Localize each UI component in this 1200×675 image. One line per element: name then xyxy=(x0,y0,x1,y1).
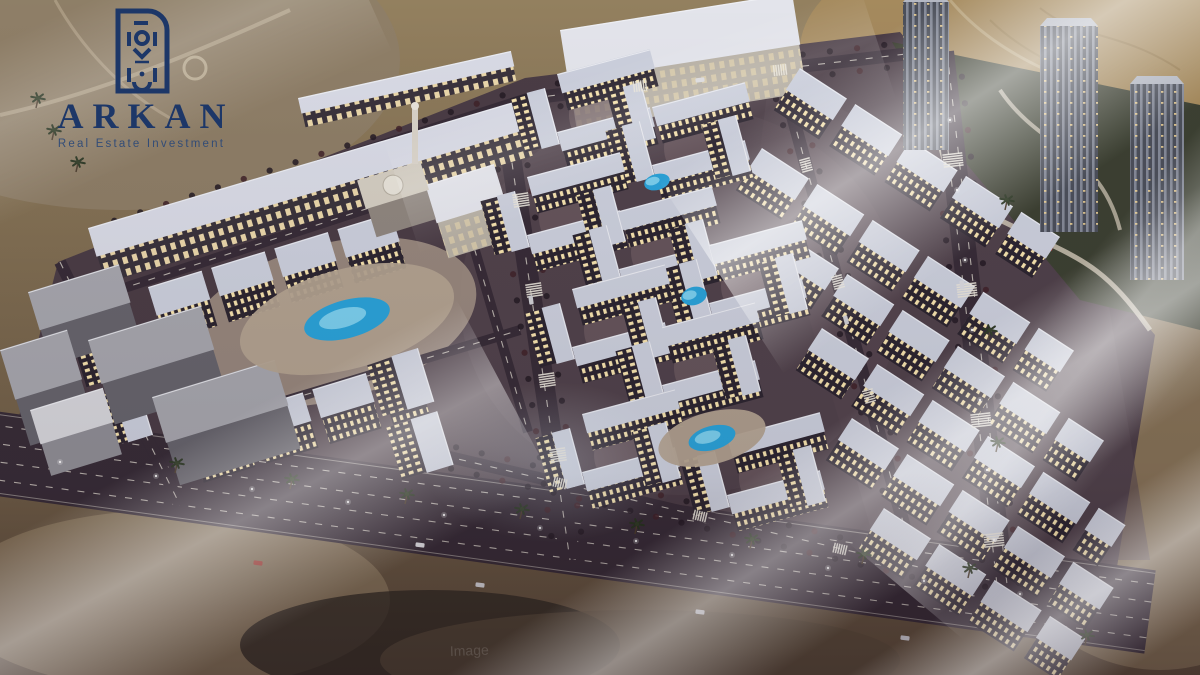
masterplan-scene: Image xyxy=(0,0,1200,675)
watermark: Image xyxy=(450,642,490,659)
aerial-masterplan-render: Image ARKAN Real Estate Investment xyxy=(0,0,1200,675)
lens-glow xyxy=(422,382,682,542)
